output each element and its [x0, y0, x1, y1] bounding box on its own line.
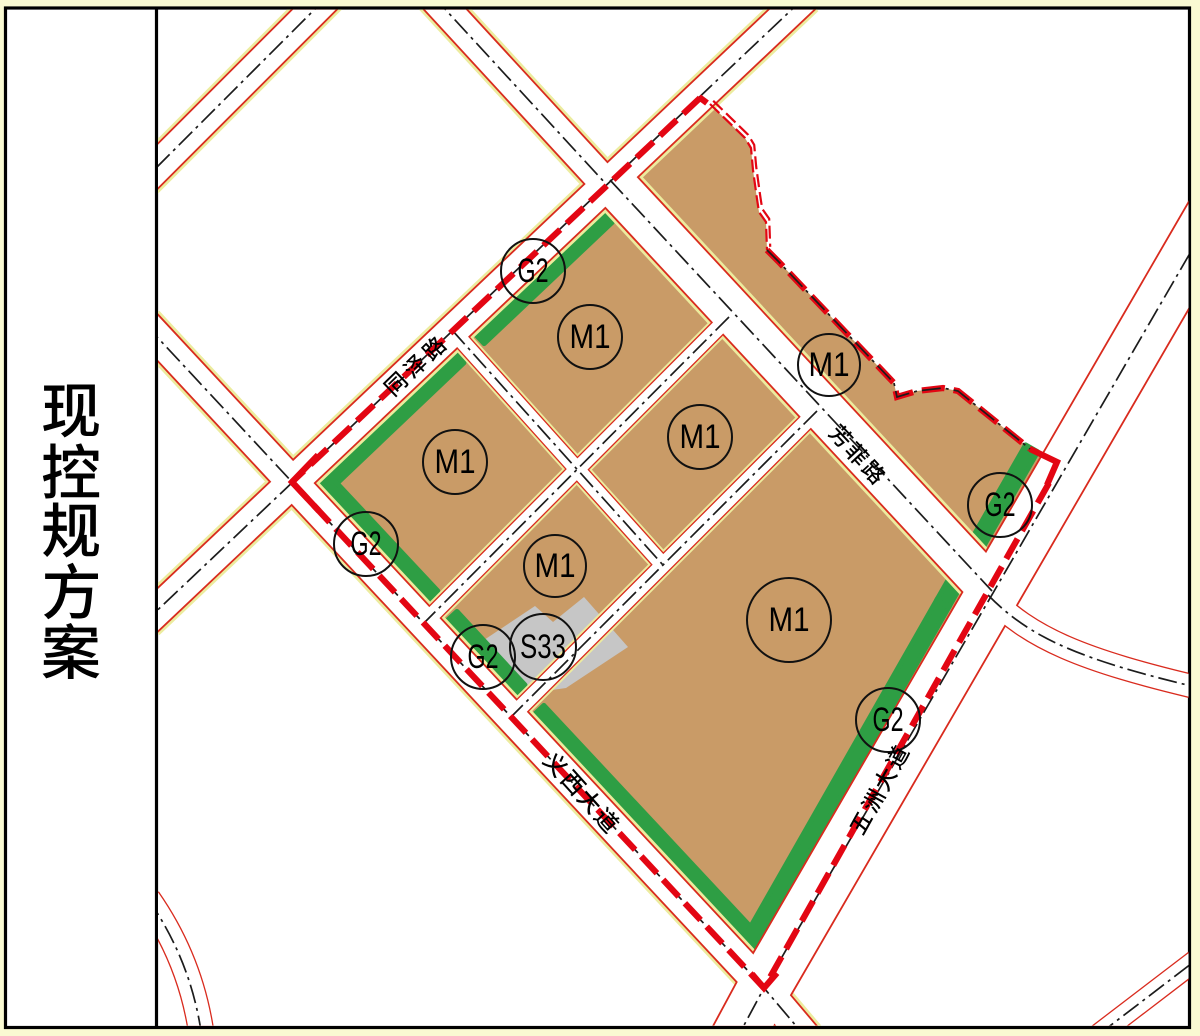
svg-text:M1: M1 [680, 418, 721, 456]
svg-text:G2: G2 [518, 252, 549, 290]
svg-text:M1: M1 [570, 318, 611, 356]
svg-text:M1: M1 [535, 547, 576, 585]
svg-text:G2: G2 [468, 638, 499, 676]
svg-text:M1: M1 [769, 601, 810, 639]
svg-text:G2: G2 [985, 486, 1016, 524]
svg-text:G2: G2 [351, 525, 382, 563]
svg-text:M1: M1 [435, 443, 476, 481]
svg-text:M1: M1 [809, 346, 850, 384]
svg-text:G2: G2 [873, 701, 904, 739]
svg-text:S33: S33 [520, 628, 566, 666]
